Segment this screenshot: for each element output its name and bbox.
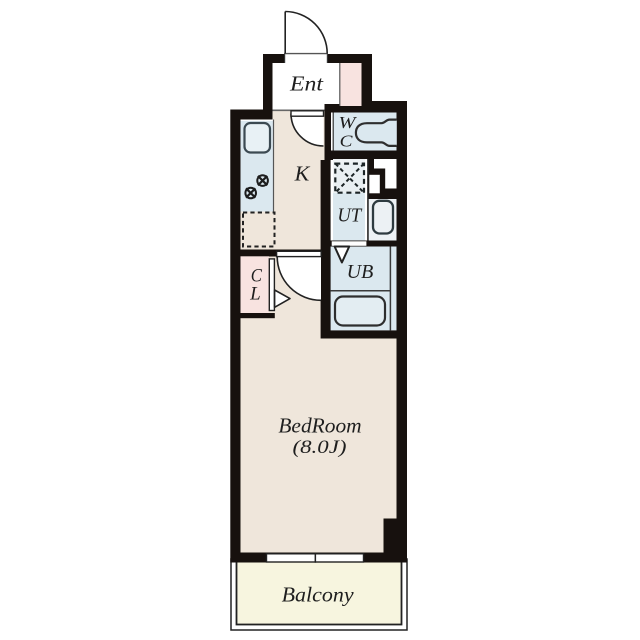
svg-text:BedRoom: BedRoom bbox=[278, 413, 361, 437]
svg-text:Balcony: Balcony bbox=[282, 582, 355, 606]
svg-text:UT: UT bbox=[337, 204, 363, 226]
svg-text:C: C bbox=[340, 132, 354, 151]
svg-text:K: K bbox=[294, 162, 311, 186]
svg-text:L: L bbox=[249, 283, 261, 304]
svg-text:Ent: Ent bbox=[289, 72, 324, 96]
svg-text:UB: UB bbox=[347, 262, 374, 283]
svg-text:(8.0J): (8.0J) bbox=[293, 437, 347, 458]
svg-text:W: W bbox=[339, 113, 358, 132]
